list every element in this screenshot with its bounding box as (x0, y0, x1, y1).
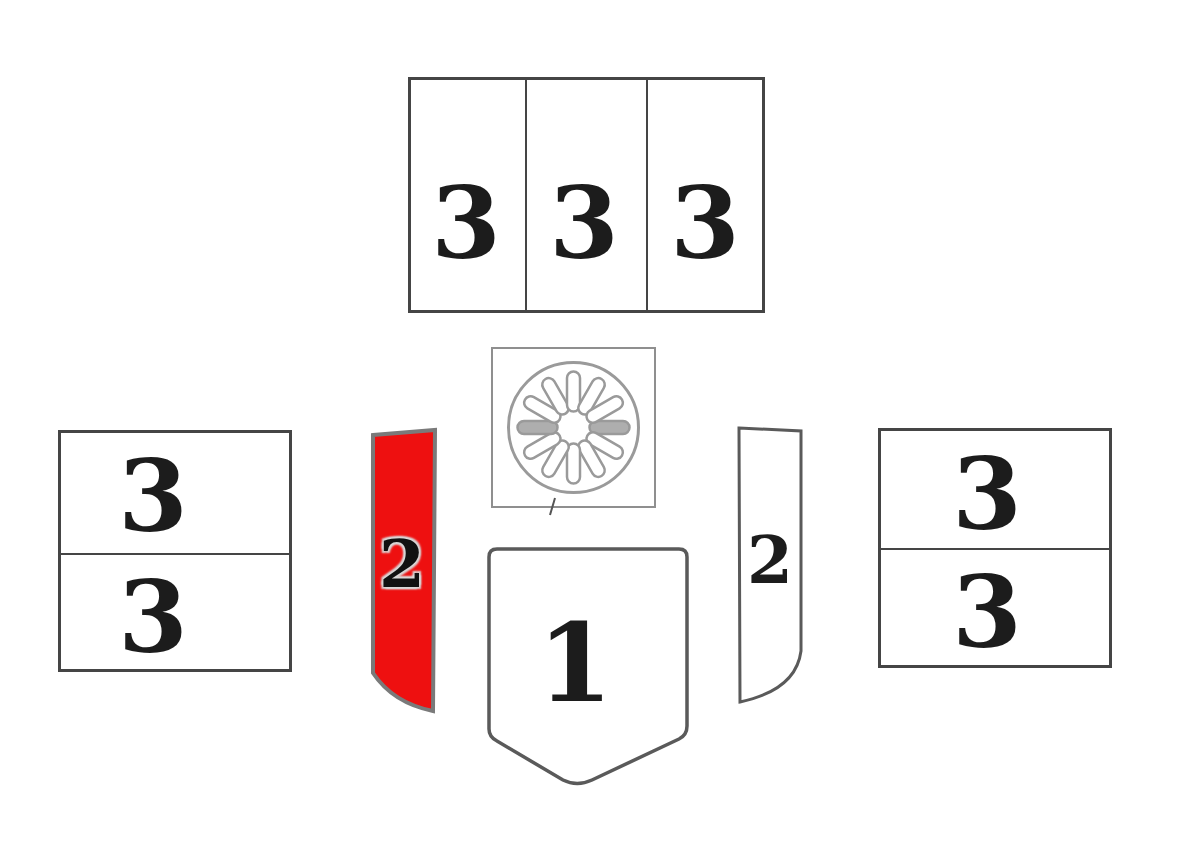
left-strip-label: 2 (352, 519, 452, 609)
stove-parts-diagram: 3 3 3 3 3 3 3 (0, 0, 1200, 855)
right-strip-label: 2 (720, 515, 820, 605)
base-shield-label: 1 (505, 598, 645, 728)
